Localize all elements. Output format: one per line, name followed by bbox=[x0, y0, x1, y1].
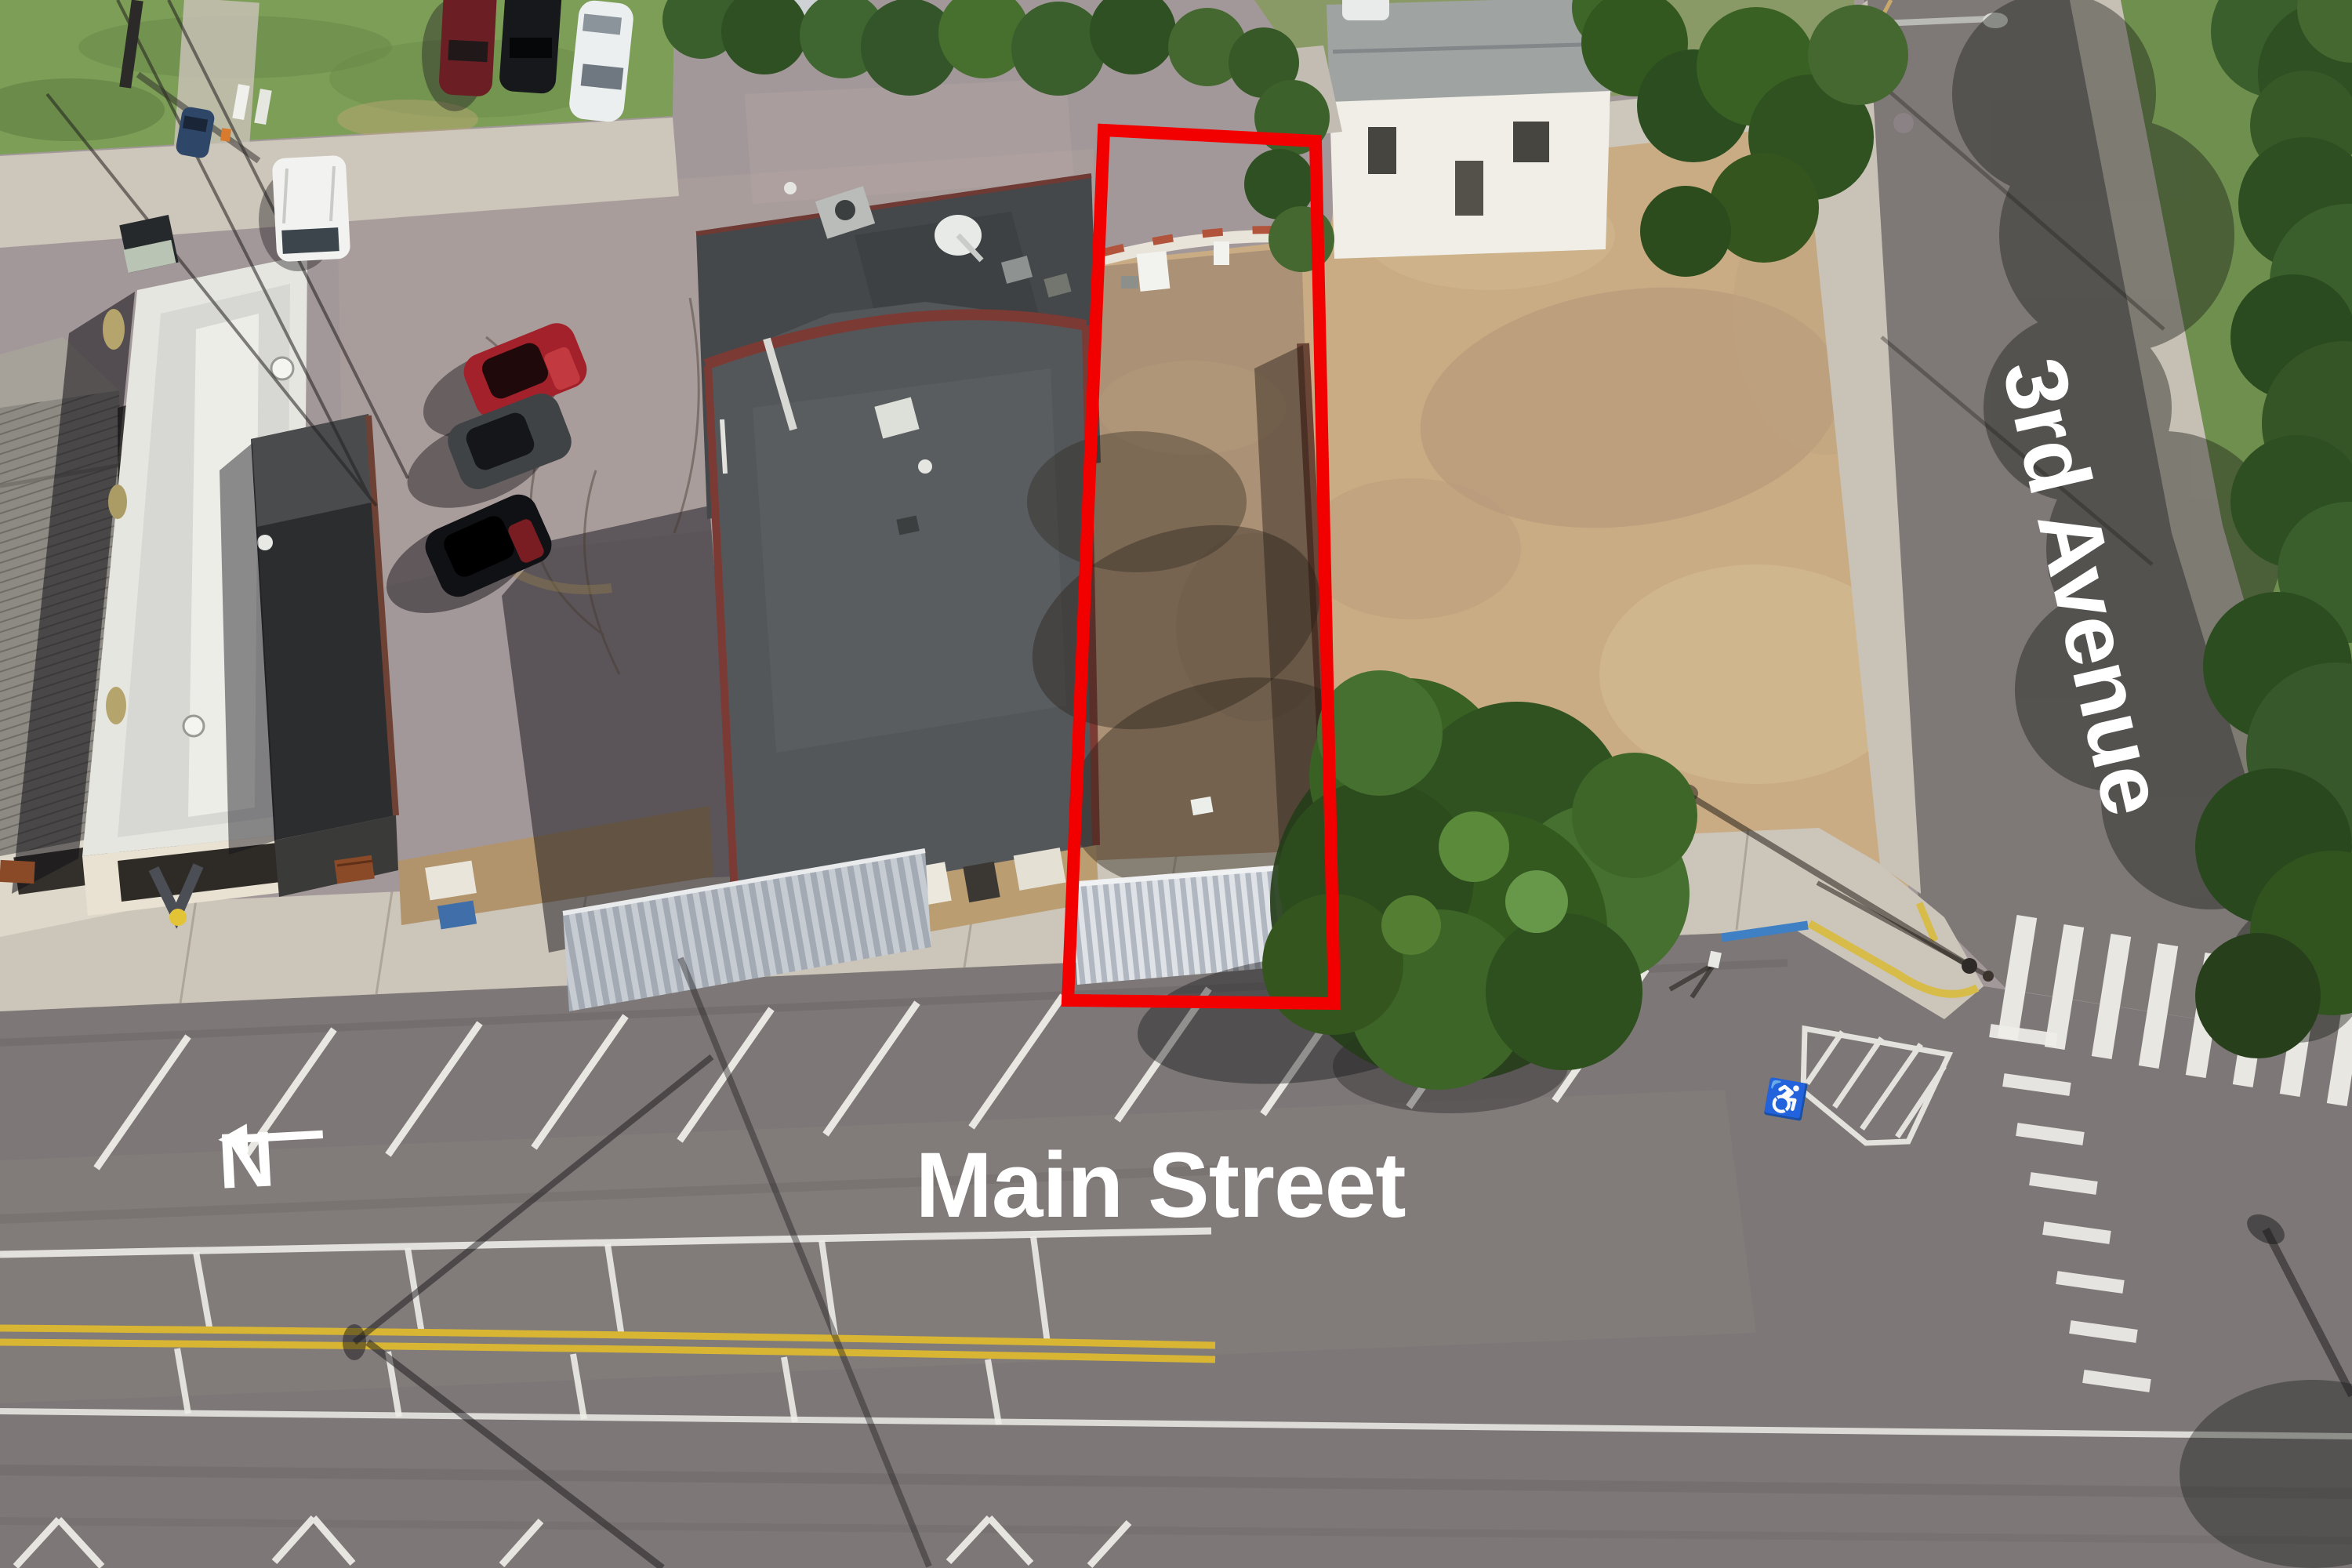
svg-text:♿: ♿ bbox=[1761, 1076, 1810, 1123]
dumpster bbox=[119, 215, 178, 273]
van-white bbox=[259, 155, 350, 271]
car-maroon bbox=[438, 0, 498, 97]
bench bbox=[0, 860, 35, 884]
car-black-suv bbox=[499, 0, 563, 94]
north-arrow-icon bbox=[216, 1117, 327, 1157]
north-indicator: N bbox=[216, 1120, 276, 1201]
fire-hydrant bbox=[169, 909, 187, 926]
main-street-label: Main Street bbox=[915, 1132, 1405, 1239]
aerial-photo: ♿ bbox=[0, 0, 2352, 1568]
aerial-photo-scene: ♿ bbox=[0, 0, 2352, 1568]
